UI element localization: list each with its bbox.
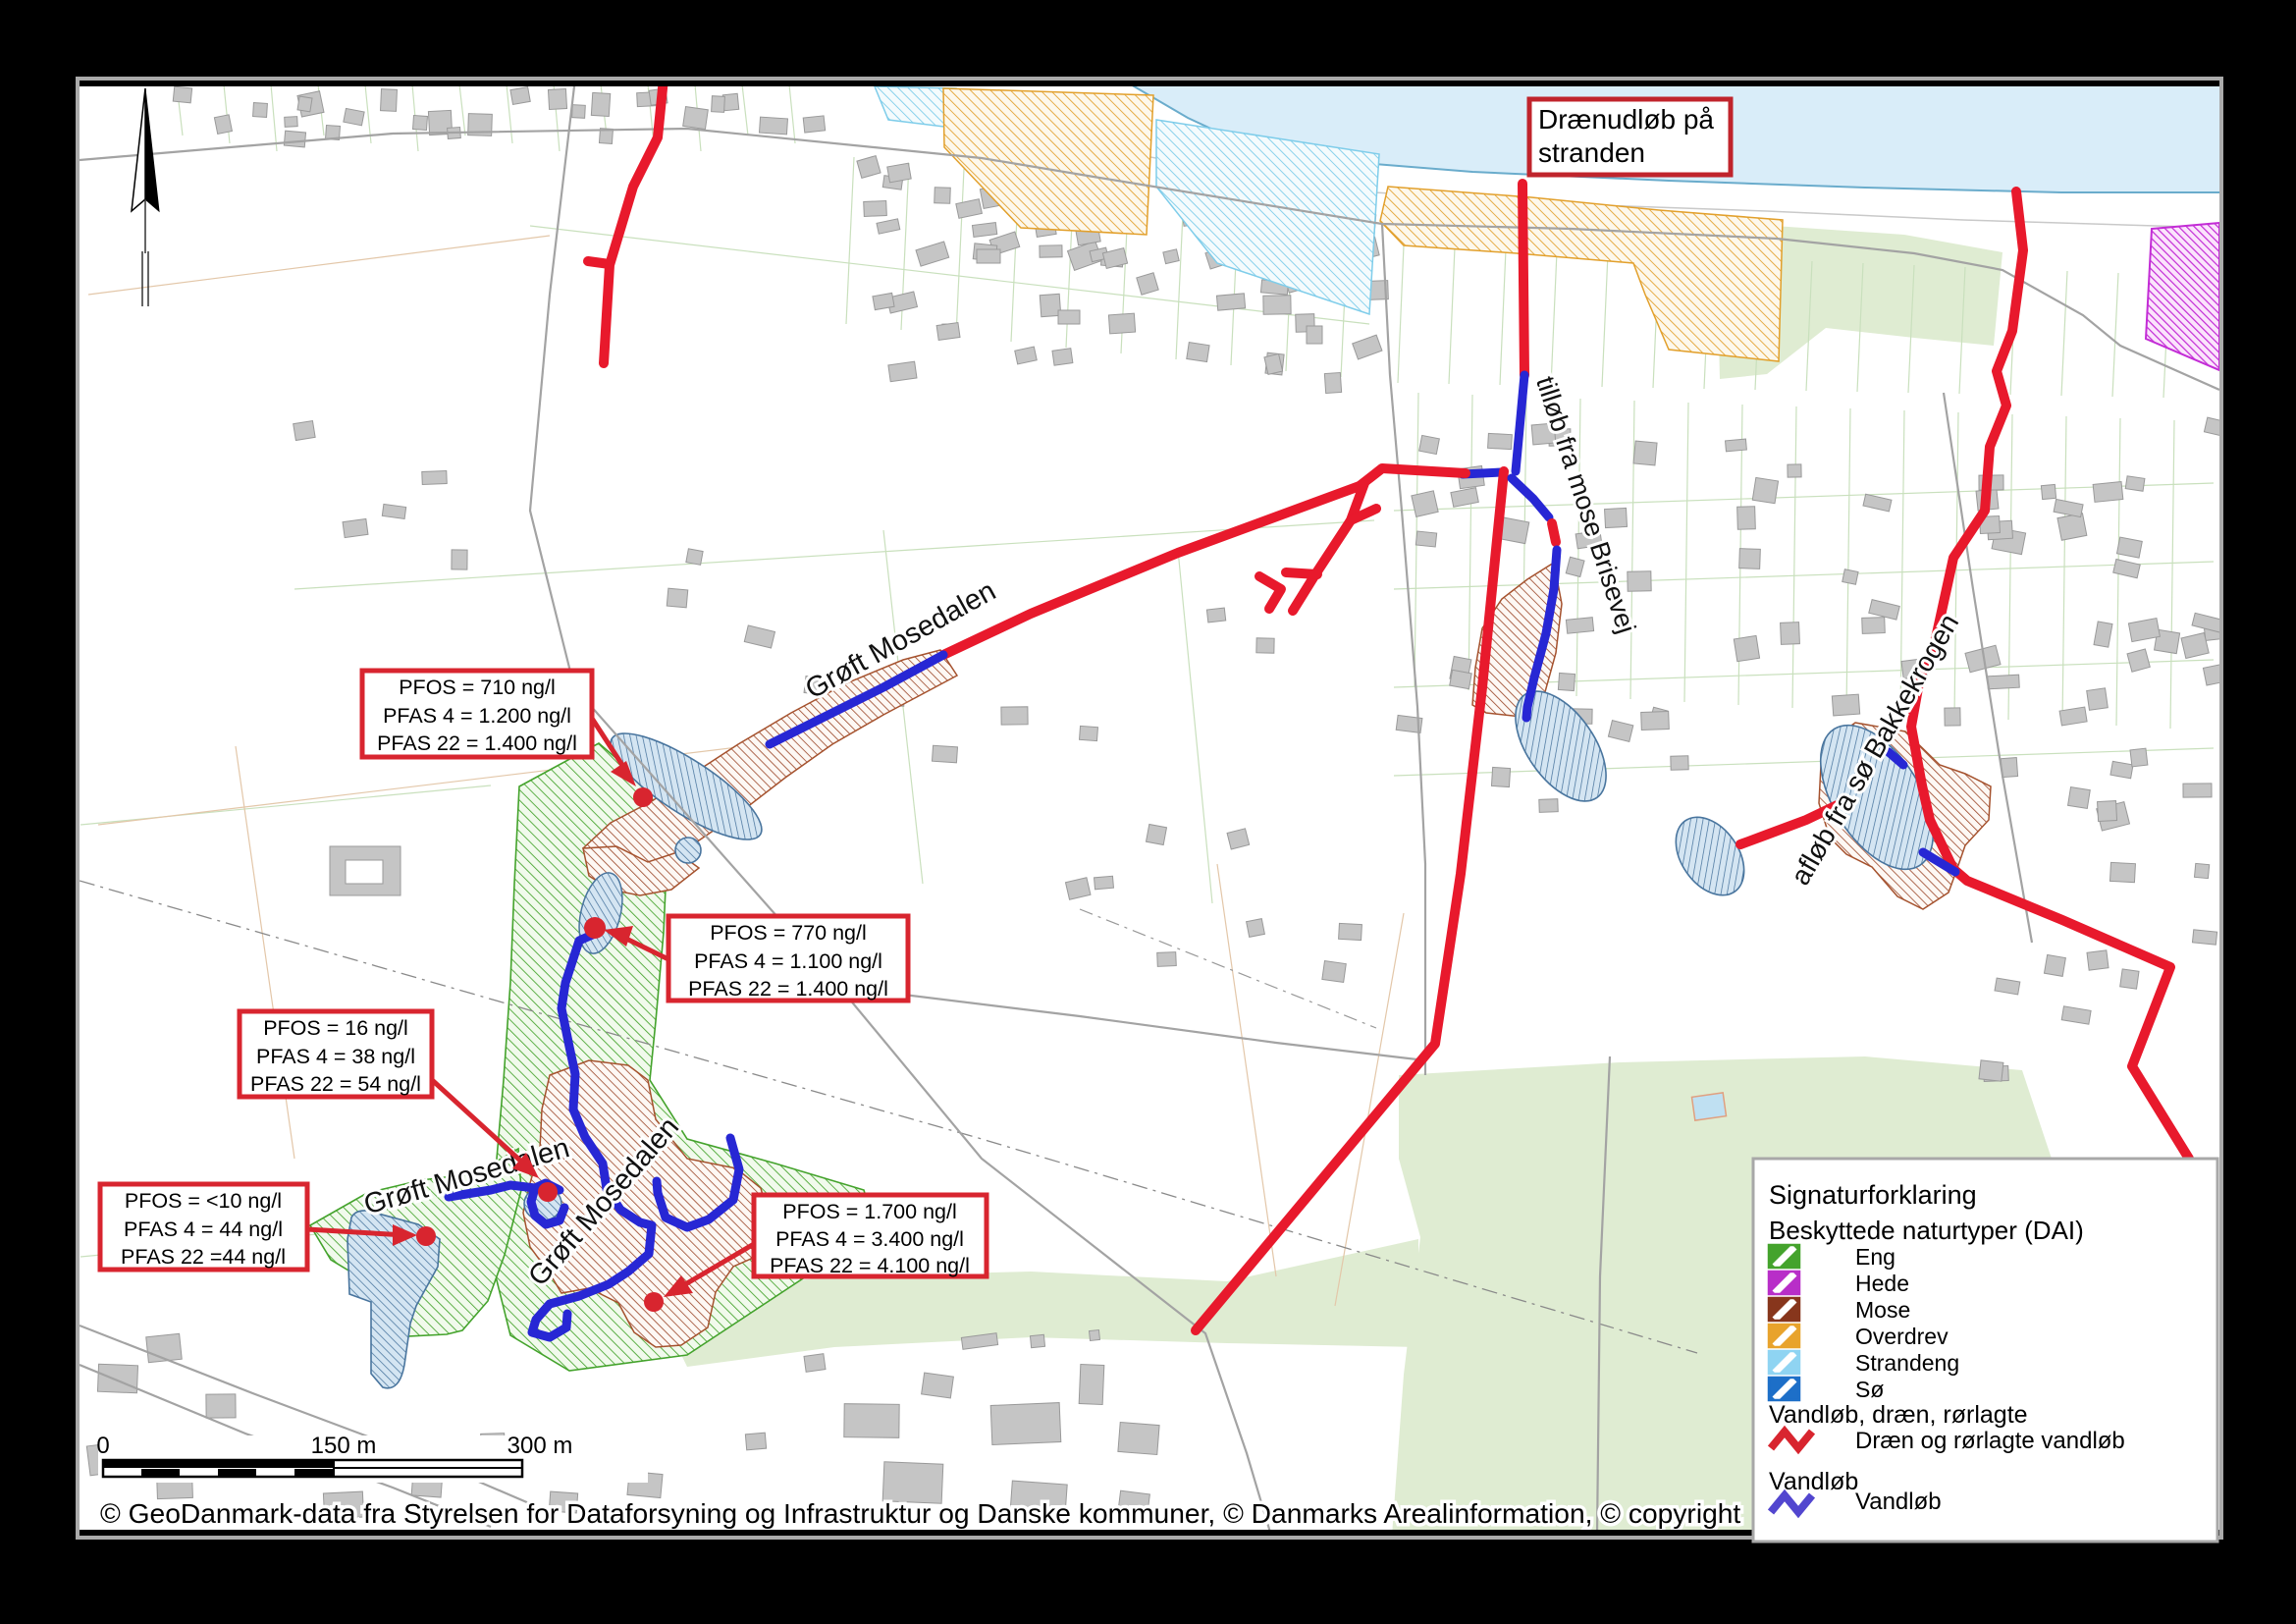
svg-text:Vandløb: Vandløb	[1855, 1489, 1942, 1515]
svg-text:PFAS 22 = 54 ng/l: PFAS 22 = 54 ng/l	[250, 1072, 421, 1096]
svg-text:PFAS 4 = 38 ng/l: PFAS 4 = 38 ng/l	[256, 1045, 415, 1068]
svg-text:Hede: Hede	[1855, 1271, 1909, 1296]
svg-text:PFAS 4 = 3.400 ng/l: PFAS 4 = 3.400 ng/l	[775, 1227, 964, 1251]
svg-text:0: 0	[96, 1433, 109, 1459]
svg-text:PFAS 4 = 1.100 ng/l: PFAS 4 = 1.100 ng/l	[694, 949, 882, 973]
svg-text:PFAS 4 = 44 ng/l: PFAS 4 = 44 ng/l	[124, 1218, 283, 1241]
svg-text:Dræn og rørlagte vandløb: Dræn og rørlagte vandløb	[1855, 1428, 2125, 1454]
svg-text:PFOS = <10 ng/l: PFOS = <10 ng/l	[125, 1189, 282, 1213]
svg-text:Overdrev: Overdrev	[1855, 1324, 1949, 1349]
svg-text:Signaturforklaring: Signaturforklaring	[1769, 1180, 1977, 1210]
svg-text:PFOS = 16 ng/l: PFOS = 16 ng/l	[263, 1016, 408, 1040]
svg-text:PFOS = 770 ng/l: PFOS = 770 ng/l	[710, 921, 867, 945]
svg-text:150 m: 150 m	[311, 1433, 377, 1459]
svg-text:PFAS 4 = 1.200 ng/l: PFAS 4 = 1.200 ng/l	[383, 704, 571, 728]
svg-text:PFAS 22 = 4.100 ng/l: PFAS 22 = 4.100 ng/l	[770, 1254, 970, 1277]
svg-text:Eng: Eng	[1855, 1244, 1896, 1270]
svg-text:Drænudløb på: Drænudløb på	[1538, 104, 1714, 135]
svg-text:PFAS 22 = 1.400 ng/l: PFAS 22 = 1.400 ng/l	[377, 731, 577, 755]
svg-text:PFAS 22 = 1.400 ng/l: PFAS 22 = 1.400 ng/l	[688, 977, 888, 1001]
svg-text:Mose: Mose	[1855, 1297, 1910, 1323]
svg-text:Sø: Sø	[1855, 1377, 1884, 1402]
svg-text:© GeoDanmark-data fra Styrelse: © GeoDanmark-data fra Styrelsen for Data…	[100, 1497, 1740, 1529]
svg-text:Strandeng: Strandeng	[1855, 1350, 1959, 1376]
svg-text:stranden: stranden	[1538, 137, 1645, 168]
svg-text:Vandløb: Vandløb	[1769, 1468, 1858, 1495]
svg-text:Vandløb, dræn, rørlagte: Vandløb, dræn, rørlagte	[1769, 1401, 2028, 1429]
svg-text:PFOS = 710 ng/l: PFOS = 710 ng/l	[399, 676, 556, 699]
svg-text:PFAS 22 =44 ng/l: PFAS 22 =44 ng/l	[121, 1245, 286, 1269]
svg-text:PFOS = 1.700 ng/l: PFOS = 1.700 ng/l	[782, 1200, 956, 1223]
svg-text:300 m: 300 m	[507, 1433, 573, 1459]
svg-text:Beskyttede naturtyper (DAI): Beskyttede naturtyper (DAI)	[1769, 1216, 2084, 1245]
